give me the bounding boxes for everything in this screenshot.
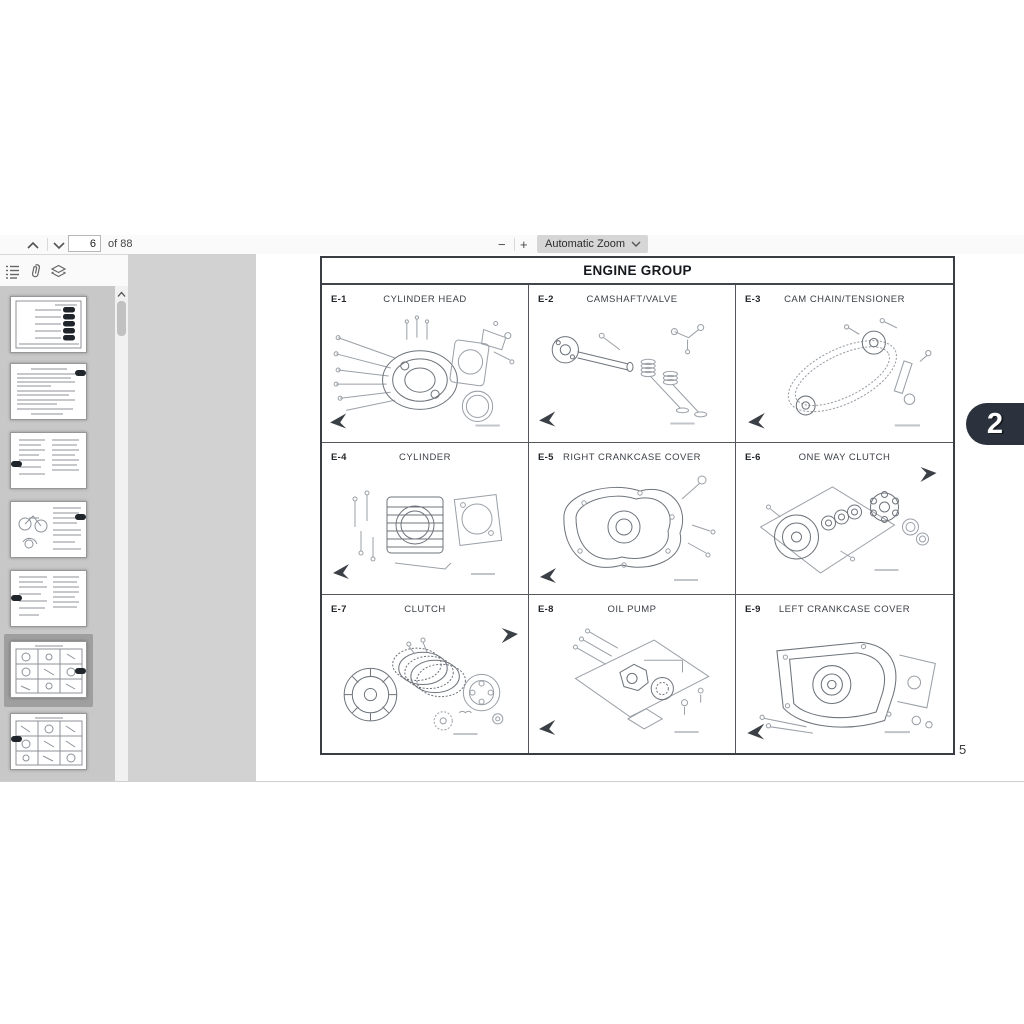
pdf-viewer-window: of 88 − + Automatic Zoom <box>0 235 1024 782</box>
previous-page-button[interactable] <box>24 236 42 253</box>
exploded-parts-diagram <box>738 465 951 590</box>
exploded-parts-diagram <box>738 617 951 749</box>
page-number-input[interactable] <box>68 235 101 252</box>
cell-title: OIL PUMP <box>529 604 735 615</box>
zoom-out-button[interactable]: − <box>498 237 506 252</box>
exploded-parts-diagram <box>531 465 733 590</box>
zoom-level-value: Automatic Zoom <box>545 238 625 250</box>
cell-title: CYLINDER HEAD <box>322 294 528 305</box>
sidebar-scrollbar[interactable] <box>115 286 128 781</box>
page-thumbnail-3[interactable] <box>10 432 87 489</box>
outline-icon <box>5 264 20 279</box>
chevron-up-icon <box>117 291 126 298</box>
cell-title: ONE WAY CLUTCH <box>736 452 953 463</box>
parts-grid: E-1 CYLINDER HEAD <box>322 285 953 753</box>
catalog-cell-e4: E-4 CYLINDER <box>322 443 529 595</box>
layers-button[interactable] <box>49 262 67 280</box>
sidebar <box>0 254 128 781</box>
cell-title: CYLINDER <box>322 452 528 463</box>
catalog-cell-e6: E-6 ONE WAY CLUTCH <box>736 443 953 595</box>
exploded-parts-diagram <box>738 307 951 438</box>
thumbnail-preview <box>11 433 86 488</box>
page-thumbnail-2[interactable] <box>10 363 87 420</box>
attachments-button[interactable] <box>27 262 45 280</box>
chevron-down-icon <box>631 241 641 248</box>
watermark-label: 2 <box>987 408 1003 441</box>
toolbar: of 88 − + Automatic Zoom <box>0 235 1024 254</box>
page-thumbnail-6-selected[interactable] <box>10 641 87 698</box>
cell-title: CAMSHAFT/VALVE <box>529 294 735 305</box>
chevron-down-icon <box>52 240 66 250</box>
document-outline-button[interactable] <box>3 262 21 280</box>
cell-title: CAM CHAIN/TENSIONER <box>736 294 953 305</box>
thumbnail-panel <box>0 286 115 781</box>
catalog-cell-e7: E-7 CLUTCH <box>322 595 529 753</box>
zoom-in-button[interactable]: + <box>520 237 528 252</box>
catalog-cell-e1: E-1 CYLINDER HEAD <box>322 285 529 443</box>
catalog-cell-e2: E-2 CAMSHAFT/VALVE <box>529 285 736 443</box>
printed-page-number: 5 <box>959 742 966 757</box>
catalog-cell-e8: E-8 OIL PUMP <box>529 595 736 753</box>
thumbnail-preview <box>11 297 86 352</box>
exploded-parts-diagram <box>324 307 526 438</box>
thumbnail-preview <box>11 714 86 769</box>
thumbnail-preview <box>11 571 86 626</box>
page-thumbnail-4[interactable] <box>10 501 87 558</box>
cell-title: CLUTCH <box>322 604 528 615</box>
thumbnail-preview <box>11 502 86 557</box>
cell-title: RIGHT CRANKCASE COVER <box>529 452 735 463</box>
page-thumbnail-7[interactable] <box>10 713 87 770</box>
page-thumbnail-5[interactable] <box>10 570 87 627</box>
next-page-button[interactable] <box>50 236 68 253</box>
zoom-level-select[interactable]: Automatic Zoom <box>537 235 648 253</box>
toolbar-separator <box>514 238 515 251</box>
exploded-parts-diagram <box>324 465 526 590</box>
catalog-cell-e9: E-9 LEFT CRANKCASE COVER <box>736 595 953 753</box>
table-title: ENGINE GROUP <box>322 258 953 285</box>
page-thumbnail-1[interactable] <box>10 296 87 353</box>
watermark-badge: 2 <box>966 403 1024 445</box>
scrollbar-thumb[interactable] <box>117 301 126 336</box>
exploded-parts-diagram <box>531 307 733 438</box>
chevron-up-icon <box>26 240 40 250</box>
scroll-up-button[interactable] <box>115 288 128 300</box>
exploded-parts-diagram <box>324 617 526 749</box>
thumbnail-preview <box>11 364 86 419</box>
layers-icon <box>50 264 67 279</box>
cell-title: LEFT CRANKCASE COVER <box>736 604 953 615</box>
catalog-cell-e5: E-5 RIGHT CRANKCASE COVER <box>529 443 736 595</box>
viewer-background <box>128 254 256 781</box>
toolbar-separator <box>47 238 48 251</box>
thumbnail-preview <box>11 642 86 697</box>
page-count-label: of 88 <box>108 238 132 250</box>
pdf-page: ENGINE GROUP E-1 CYLINDER HEAD <box>256 254 1024 781</box>
catalog-cell-e3: E-3 CAM CHAIN/TENSIONER <box>736 285 953 443</box>
parts-group-table: ENGINE GROUP E-1 CYLINDER HEAD <box>320 256 955 755</box>
exploded-parts-diagram <box>531 617 733 749</box>
paperclip-icon <box>28 263 44 280</box>
sidebar-view-buttons <box>0 255 128 286</box>
